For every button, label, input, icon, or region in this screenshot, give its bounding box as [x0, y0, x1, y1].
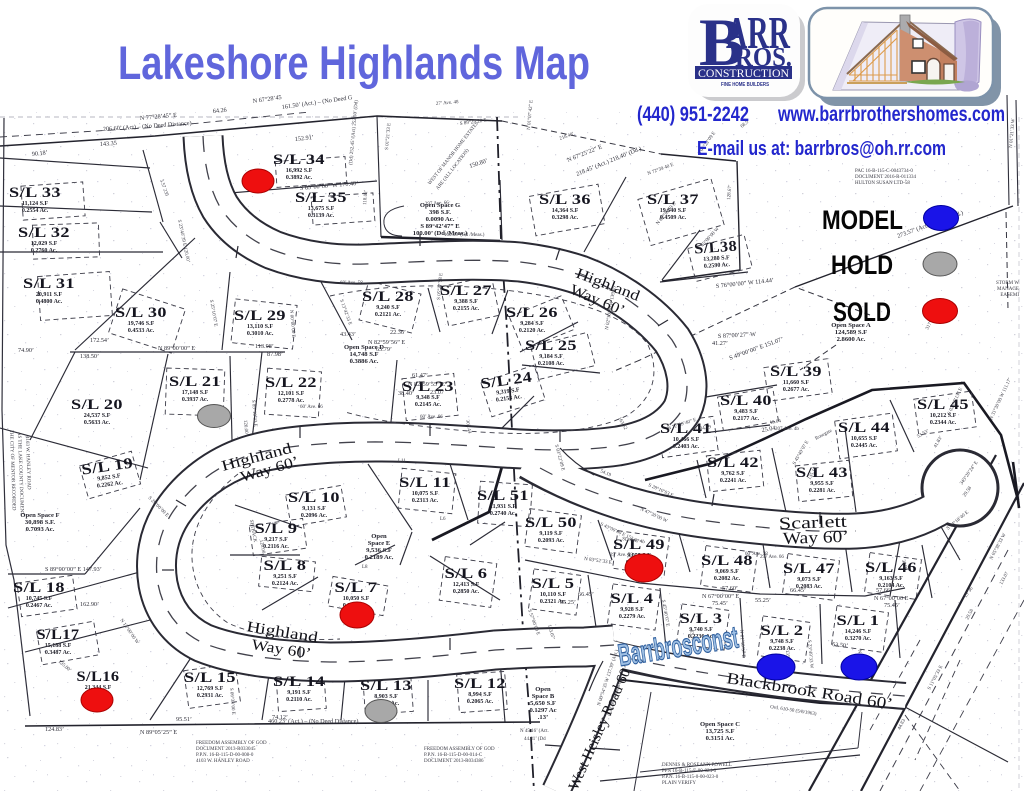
svg-text:11,931 S.F: 11,931 S.F	[490, 504, 517, 510]
svg-text:L6: L6	[440, 517, 446, 522]
svg-text:0.2096 Ac.: 0.2096 Ac.	[301, 513, 328, 519]
svg-text:9,119 S.F: 9,119 S.F	[539, 531, 563, 537]
svg-text:2.8600 Ac.: 2.8600 Ac.	[837, 336, 866, 343]
svg-text:10,745 S.F: 10,745 S.F	[26, 596, 53, 602]
svg-text:0.3139 Ac.: 0.3139 Ac.	[308, 213, 335, 219]
svg-text:Space E: Space E	[368, 540, 391, 547]
svg-text:S/L 11: S/L 11	[399, 475, 451, 491]
svg-text:S/L 36: S/L 36	[539, 192, 591, 208]
svg-text:9,748 S.F: 9,748 S.F	[770, 639, 794, 645]
svg-text:0.2740 Ac.: 0.2740 Ac.	[490, 511, 517, 517]
svg-text:0.0090 Ac.: 0.0090 Ac.	[426, 216, 455, 223]
svg-text:S/L 39: S/L 39	[770, 364, 822, 380]
svg-text:0.2313 Ac.: 0.2313 Ac.	[412, 498, 439, 504]
svg-text:0.2093 Ac.: 0.2093 Ac.	[538, 538, 565, 544]
svg-text:S/L17: S/L17	[37, 627, 80, 643]
svg-text:DENNIS & ROSEANN POWELL: DENNIS & ROSEANN POWELL	[662, 763, 732, 768]
svg-text:124,589 S.F: 124,589 S.F	[835, 329, 867, 336]
svg-text:11,124 S.F: 11,124 S.F	[22, 201, 49, 207]
svg-text:10,655 S.F: 10,655 S.F	[851, 436, 878, 442]
svg-text:14,246 S.F: 14,246 S.F	[845, 629, 872, 635]
svg-text:0.4533 Ac.: 0.4533 Ac.	[128, 328, 155, 334]
svg-text:172.54’: 172.54’	[90, 337, 109, 344]
svg-text:0.2155 Ac.: 0.2155 Ac.	[453, 306, 480, 312]
svg-text:S/L 18: S/L 18	[13, 580, 65, 596]
svg-text:P.P.N. 16-B-115-0-00-023-0: P.P.N. 16-B-115-0-00-023-0	[662, 775, 719, 780]
svg-text:12,101 S.F: 12,101 S.F	[278, 391, 305, 397]
svg-text:138.50’: 138.50’	[80, 353, 99, 360]
svg-text:Open: Open	[535, 686, 551, 693]
svg-text:MODEL: MODEL	[822, 205, 903, 235]
svg-text:DOCUMENT 2013-R033045: DOCUMENT 2013-R033045	[196, 747, 256, 752]
svg-text:EASEMI: EASEMI	[1000, 293, 1019, 298]
svg-text:9,536 S.F: 9,536 S.F	[366, 547, 392, 554]
svg-text:9,955 S.F: 9,955 S.F	[810, 481, 834, 487]
svg-text:9,928 S.F: 9,928 S.F	[620, 607, 644, 613]
svg-text:14,364 S.F: 14,364 S.F	[552, 208, 579, 214]
svg-text:113.98’: 113.98’	[255, 343, 274, 350]
svg-text:N 89°05’25” E: N 89°05’25” E	[140, 729, 177, 736]
svg-text:57.66’: 57.66’	[876, 587, 892, 594]
svg-text:0.5633 Ac.: 0.5633 Ac.	[84, 420, 111, 426]
svg-text:0.2116 Ac.: 0.2116 Ac.	[263, 544, 289, 550]
svg-text:124.83’: 124.83’	[45, 726, 64, 733]
svg-text:12,413 S.F: 12,413 S.F	[453, 582, 480, 588]
svg-text:10,050 S.F: 10,050 S.F	[343, 596, 370, 602]
svg-text:S/L 47: S/L 47	[783, 561, 835, 577]
svg-text:0.2931 Ac.: 0.2931 Ac.	[197, 693, 224, 699]
svg-text:Open Space C: Open Space C	[700, 721, 740, 728]
svg-text:0.2279 Ac.: 0.2279 Ac.	[619, 614, 646, 620]
svg-text:0.2238 Ac.: 0.2238 Ac.	[769, 646, 796, 652]
svg-text:S/L 2: S/L 2	[761, 623, 804, 639]
svg-text:4103 W. HANLEY ROAD: 4103 W. HANLEY ROAD	[196, 759, 250, 764]
svg-text:9,184 S.F: 9,184 S.F	[539, 354, 563, 360]
svg-text:0.2760 Ac.: 0.2760 Ac.	[31, 248, 58, 254]
svg-text:9,163 S.F: 9,163 S.F	[879, 576, 903, 582]
svg-text:FREEDOM ASSEMBLY OF GOD: FREEDOM ASSEMBLY OF GOD	[424, 747, 495, 752]
svg-text:S/L 50: S/L 50	[525, 515, 577, 531]
svg-text:0.2778 Ac.: 0.2778 Ac.	[278, 398, 305, 404]
svg-text:55.25’: 55.25’	[560, 599, 576, 606]
svg-text:9,191 S.F: 9,191 S.F	[287, 690, 311, 696]
svg-text:S/L 44: S/L 44	[838, 420, 890, 436]
svg-text:0.2850 Ac.: 0.2850 Ac.	[453, 589, 480, 595]
svg-text:0.2110 Ac.: 0.2110 Ac.	[286, 697, 312, 703]
svg-text:SOLD: SOLD	[833, 297, 891, 327]
svg-text:87.98’: 87.98’	[267, 351, 283, 358]
svg-text:S/L 33: S/L 33	[9, 185, 61, 201]
svg-text:N 45.16’ (Act.: N 45.16’ (Act.	[520, 729, 549, 734]
svg-text:43.43’: 43.43’	[340, 331, 356, 338]
svg-text:74.90’: 74.90’	[18, 347, 34, 354]
svg-text:N 67°00’00” E: N 67°00’00” E	[702, 593, 739, 600]
svg-text:L8: L8	[362, 565, 368, 570]
svg-text:S/L 40: S/L 40	[720, 393, 772, 409]
svg-text:N 82°59’55” E: N 82°59’55” E	[408, 381, 445, 388]
svg-text:23.07: 23.07	[430, 389, 444, 396]
svg-text:9,251 S.F: 9,251 S.F	[273, 574, 297, 580]
svg-text:0.3892 Ac.: 0.3892 Ac.	[286, 175, 313, 181]
svg-text:0.2065 Ac.: 0.2065 Ac.	[467, 699, 494, 705]
svg-text:0.3151 Ac.: 0.3151 Ac.	[706, 735, 735, 742]
svg-text:S/L16: S/L16	[77, 669, 120, 685]
svg-text:9,073 S.F: 9,073 S.F	[797, 577, 821, 583]
svg-text:14,748 S.F: 14,748 S.F	[349, 351, 378, 358]
svg-text:.13’: .13’	[538, 714, 548, 721]
svg-text:S/L 45: S/L 45	[917, 397, 969, 413]
svg-text:11,660 S.F: 11,660 S.F	[783, 380, 810, 386]
svg-text:N 67°00’00 E: N 67°00’00 E	[874, 595, 909, 602]
svg-text:E-mail us at: barrbros@oh.rr.c: E-mail us at: barrbros@oh.rr.com	[697, 138, 946, 160]
svg-text:41.27’: 41.27’	[712, 340, 728, 347]
svg-text:0.2108 Ac.: 0.2108 Ac.	[538, 361, 565, 367]
svg-text:N 82°59’56” E: N 82°59’56” E	[368, 339, 405, 346]
svg-text:0.3270 Ac.: 0.3270 Ac.	[845, 636, 872, 642]
svg-text:S/L 35: S/L 35	[295, 190, 347, 206]
svg-text:66.45’: 66.45’	[790, 587, 806, 594]
svg-text:13,675 S.F: 13,675 S.F	[308, 206, 335, 212]
svg-text:0.3487 Ac.: 0.3487 Ac.	[45, 650, 72, 656]
svg-text:0.2241 Ac.: 0.2241 Ac.	[720, 478, 747, 484]
svg-text:S/L 46: S/L 46	[865, 560, 917, 576]
svg-text:460.23’ (Act.) – (No Deed Dist: 460.23’ (Act.) – (No Deed Distance)	[268, 718, 358, 725]
svg-text:38.40’: 38.40’	[398, 390, 414, 397]
svg-text:DOCUMENT 2016-R-011334: DOCUMENT 2016-R-011334	[855, 175, 916, 180]
svg-text:S/L 6: S/L 6	[445, 566, 488, 582]
svg-text:S/L 21: S/L 21	[169, 374, 221, 390]
svg-text:S/L 29: S/L 29	[234, 308, 286, 324]
svg-text:0.3010 Ac.: 0.3010 Ac.	[247, 331, 274, 337]
svg-text:9,131 S.F: 9,131 S.F	[302, 506, 326, 512]
svg-text:S/L 31: S/L 31	[23, 276, 75, 292]
svg-text:S/L 32: S/L 32	[18, 225, 70, 241]
svg-text:297 Ave. 66: 297 Ave. 66	[760, 555, 784, 560]
svg-text:10,466 S.F: 10,466 S.F	[673, 437, 700, 443]
svg-text:9,388 S.F: 9,388 S.F	[454, 299, 478, 305]
svg-text:MANAGE: MANAGE	[997, 287, 1019, 292]
svg-text:Way 60’: Way 60’	[782, 527, 849, 548]
svg-text:0.2677 Ac.: 0.2677 Ac.	[783, 387, 810, 393]
svg-text:0.3886 Ac.: 0.3886 Ac.	[350, 358, 379, 365]
svg-text:S/L 5: S/L 5	[532, 576, 575, 592]
svg-text:S/L 26: S/L 26	[506, 305, 558, 321]
svg-text:S/L 13: S/L 13	[360, 678, 412, 694]
svg-text:9,762 S.F: 9,762 S.F	[721, 471, 745, 477]
svg-text:PLAIN VERIFY: PLAIN VERIFY	[662, 781, 696, 786]
svg-text:44.81’ (Dd: 44.81’ (Dd	[524, 737, 546, 742]
svg-text:162.90’: 162.90’	[80, 601, 99, 608]
svg-text:19,746 S.F: 19,746 S.F	[128, 321, 155, 327]
svg-text:12,029 S.F: 12,029 S.F	[31, 241, 58, 247]
svg-text:S/L 14: S/L 14	[273, 674, 325, 690]
svg-text:0.2344 Ac.: 0.2344 Ac.	[930, 420, 957, 426]
svg-text:S/L 9: S/L 9	[255, 521, 298, 537]
svg-text:P.P.N. 16-B-115-D-00-014-C: P.P.N. 16-B-115-D-00-014-C	[424, 753, 483, 758]
svg-text:S/L 8: S/L 8	[264, 558, 307, 574]
svg-text:S/L 1: S/L 1	[837, 613, 880, 629]
svg-text:13,110 S.F: 13,110 S.F	[247, 324, 274, 330]
svg-text:0.2177 Ac.: 0.2177 Ac.	[733, 416, 760, 422]
svg-text:S/L 7: S/L 7	[335, 580, 378, 596]
svg-text:8,903 S.F: 8,903 S.F	[374, 694, 398, 700]
svg-text:0.2467 Ac.: 0.2467 Ac.	[26, 603, 53, 609]
svg-text:0.3298 Ac.: 0.3298 Ac.	[552, 215, 579, 221]
svg-text:0.2121 Ac.: 0.2121 Ac.	[375, 312, 402, 318]
svg-text:S 89°00’00” E 147.93’: S 89°00’00” E 147.93’	[45, 566, 102, 573]
svg-text:5,650 S.F: 5,650 S.F	[530, 700, 556, 707]
svg-text:9,069 S.F: 9,069 S.F	[715, 569, 739, 575]
svg-text:0.2124 Ac.: 0.2124 Ac.	[272, 581, 299, 587]
svg-text:12,769 S.F: 12,769 S.F	[197, 686, 224, 692]
svg-text:8,994 S.F: 8,994 S.F	[468, 692, 492, 698]
svg-text:L11: L11	[398, 459, 406, 464]
svg-text:HULTON SUSAN LTD-58: HULTON SUSAN LTD-58	[855, 181, 910, 186]
svg-text:9,240 S.F: 9,240 S.F	[376, 305, 400, 311]
svg-text:HOLD: HOLD	[831, 250, 893, 280]
svg-text:S/L 4: S/L 4	[611, 591, 654, 607]
svg-text:207 Ave. 4b: 207 Ave. 4b	[775, 427, 799, 432]
svg-text:65.79’: 65.79’	[376, 346, 392, 353]
svg-text:17,148 S.F: 17,148 S.F	[182, 390, 209, 396]
svg-text:S/L 27: S/L 27	[440, 283, 492, 299]
svg-text:95.51’: 95.51’	[176, 716, 192, 723]
svg-text:S/L 42: S/L 42	[707, 455, 759, 471]
svg-text:0.4800 Ac.: 0.4800 Ac.	[36, 299, 63, 305]
svg-text:DOCUMENT 2013-R034386: DOCUMENT 2013-R034386	[424, 759, 484, 764]
svg-text:(440) 951-2242: (440) 951-2242	[637, 103, 749, 126]
svg-text:60’ Ave. 66: 60’ Ave. 66	[300, 405, 323, 410]
svg-text:15,188 S.F: 15,188 S.F	[45, 643, 72, 649]
svg-text:75.45’: 75.45’	[884, 602, 900, 609]
svg-text:0.2120 Ac.: 0.2120 Ac.	[519, 328, 546, 334]
svg-text:S/L 51: S/L 51	[477, 488, 529, 504]
svg-text:N 89°00’00” E: N 89°00’00” E	[158, 345, 195, 352]
svg-text:PPN 16-B-115-E-00-024-0: PPN 16-B-115-E-00-024-0	[662, 769, 717, 774]
svg-text:75.45’: 75.45’	[712, 600, 728, 607]
svg-text:S/L 30: S/L 30	[115, 305, 167, 321]
svg-text:20,911 S.F: 20,911 S.F	[36, 292, 63, 298]
svg-text:60’ Ave. 66: 60’ Ave. 66	[420, 415, 443, 420]
svg-text:9,217 S.F: 9,217 S.F	[264, 537, 288, 543]
svg-text:Lakeshore Highlands Map: Lakeshore Highlands Map	[118, 36, 590, 89]
svg-text:55.25’: 55.25’	[755, 597, 771, 604]
svg-text:66.45’: 66.45’	[578, 591, 594, 598]
svg-text:9,284 S.F: 9,284 S.F	[520, 321, 544, 327]
svg-text:FREEDOM ASSEMBLY OF GOD: FREEDOM ASSEMBLY OF GOD	[196, 741, 267, 746]
svg-text:S/L 28: S/L 28	[362, 289, 414, 305]
svg-text:0.2189 Ac.: 0.2189 Ac.	[365, 554, 394, 561]
svg-text:Open Space F: Open Space F	[20, 512, 59, 519]
svg-text:S/L 20: S/L 20	[71, 397, 123, 413]
svg-text:S/L 43: S/L 43	[796, 465, 848, 481]
svg-text:S/L 22: S/L 22	[265, 375, 317, 391]
svg-text:0.7093 Ac.: 0.7093 Ac.	[26, 526, 55, 533]
svg-text:S 89°42’47” E: S 89°42’47” E	[420, 223, 460, 230]
svg-text:www.barrbrothershomes.com: www.barrbrothershomes.com	[777, 103, 1005, 126]
svg-text:60’ Ave. 58: 60’ Ave. 58	[340, 281, 363, 286]
svg-text:0.2281 Ac.: 0.2281 Ac.	[809, 488, 836, 494]
svg-text:S/L 10: S/L 10	[288, 490, 340, 506]
svg-text:Open: Open	[371, 533, 387, 540]
svg-text:29’ Ave. 58: 29’ Ave. 58	[610, 553, 633, 558]
svg-text:57.60’: 57.60’	[722, 585, 738, 592]
svg-text:9,483 S.F: 9,483 S.F	[734, 409, 758, 415]
svg-text:61.47’: 61.47’	[412, 372, 428, 379]
svg-text:22.36’: 22.36’	[390, 329, 406, 336]
svg-text:24,537 S.F: 24,537 S.F	[84, 413, 111, 419]
svg-text:P.P.N. 16-B-115-D-00-008-0: P.P.N. 16-B-115-D-00-008-0	[196, 753, 254, 758]
svg-text:100.00’ (Dd /Meas.): 100.00’ (Dd /Meas.)	[444, 233, 485, 238]
svg-text:10,075 S.F: 10,075 S.F	[412, 491, 439, 497]
svg-text:Space B: Space B	[532, 693, 555, 700]
svg-text:0.1297 Ac: 0.1297 Ac	[529, 707, 556, 714]
svg-text:0.2403 Ac.: 0.2403 Ac.	[673, 444, 700, 450]
svg-text:10,110 S.F: 10,110 S.F	[540, 592, 567, 598]
svg-text:S/L 15: S/L 15	[184, 670, 236, 686]
svg-text:0.3937 Ac.: 0.3937 Ac.	[182, 397, 209, 403]
svg-text:0.2445 Ac.: 0.2445 Ac.	[851, 443, 878, 449]
svg-text:S/L 12: S/L 12	[454, 676, 506, 692]
svg-text:13,725 S.F: 13,725 S.F	[705, 728, 734, 735]
svg-text:398 S.F.: 398 S.F.	[429, 209, 451, 216]
svg-text:STORM W: STORM W	[996, 281, 1019, 286]
svg-text:S/L 25: S/L 25	[525, 338, 577, 354]
svg-text:0.2554 Ac.: 0.2554 Ac.	[22, 208, 49, 214]
svg-text:30,898 S.F.: 30,898 S.F.	[25, 519, 56, 526]
svg-text:0.2082 Ac.: 0.2082 Ac.	[714, 576, 741, 582]
svg-text:0.2145 Ac.: 0.2145 Ac.	[415, 402, 442, 408]
